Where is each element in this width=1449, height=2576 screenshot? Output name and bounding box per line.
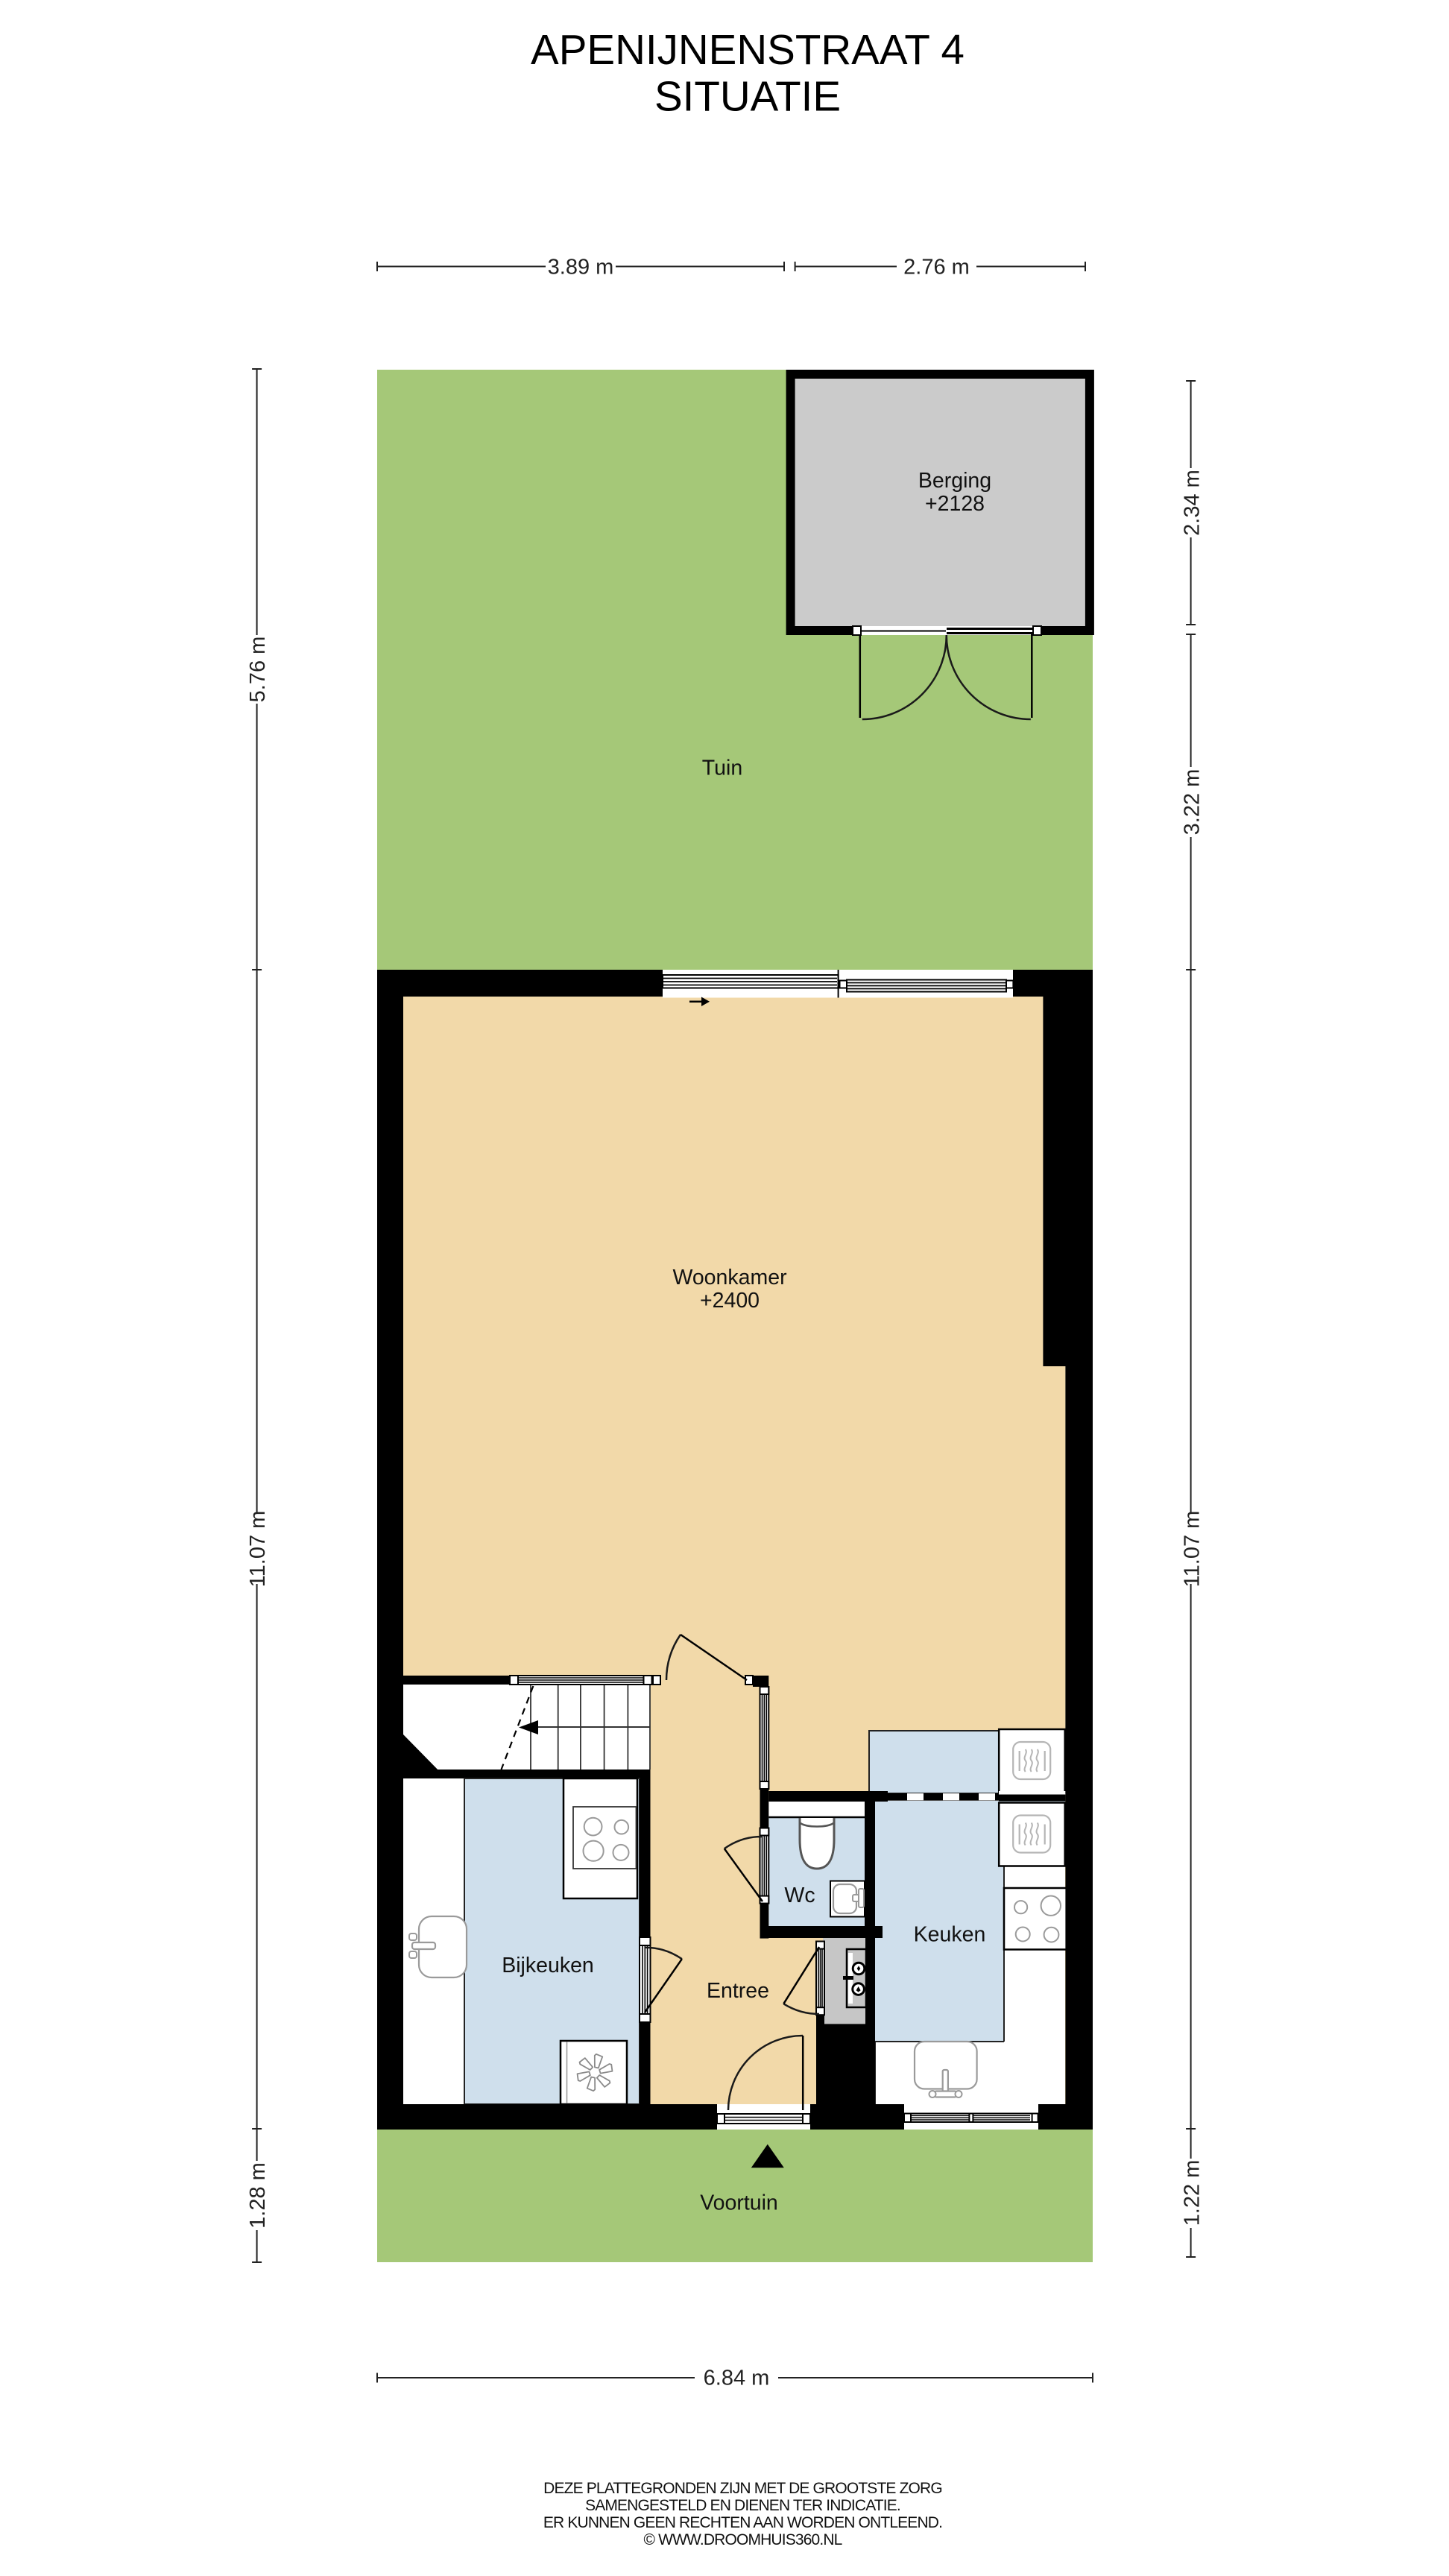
svg-text:+2128: +2128 xyxy=(925,492,985,516)
svg-text:Entree: Entree xyxy=(707,1979,769,2003)
svg-text:6.84 m: 6.84 m xyxy=(704,2367,770,2390)
svg-text:3.89 m: 3.89 m xyxy=(548,256,614,280)
svg-text:APENIJNENSTRAAT 4: APENIJNENSTRAAT 4 xyxy=(531,26,965,73)
svg-text:SAMENGESTELD EN DIENEN TER IND: SAMENGESTELD EN DIENEN TER INDICATIE. xyxy=(585,2497,900,2514)
svg-text:Keuken: Keuken xyxy=(914,1923,986,1947)
svg-text:Tuin: Tuin xyxy=(702,756,742,780)
svg-text:11.07 m: 11.07 m xyxy=(246,1511,270,1588)
svg-text:1.22 m: 1.22 m xyxy=(1181,2160,1205,2226)
svg-text:+2400: +2400 xyxy=(700,1289,760,1313)
svg-text:1.28 m: 1.28 m xyxy=(246,2162,270,2229)
svg-text:2.76 m: 2.76 m xyxy=(903,256,970,280)
svg-text:Wc: Wc xyxy=(784,1884,815,1907)
svg-text:2.34 m: 2.34 m xyxy=(1181,470,1205,536)
svg-text:ER KUNNEN GEEN RECHTEN AAN WOR: ER KUNNEN GEEN RECHTEN AAN WORDEN ONTLEE… xyxy=(543,2514,942,2531)
svg-text:Voortuin: Voortuin xyxy=(700,2191,778,2214)
svg-text:DEZE PLATTEGRONDEN ZIJN MET DE: DEZE PLATTEGRONDEN ZIJN MET DE GROOTSTE … xyxy=(543,2480,942,2497)
svg-text:Berging: Berging xyxy=(918,469,991,493)
svg-text:SITUATIE: SITUATIE xyxy=(654,72,841,119)
svg-text:Bijkeuken: Bijkeuken xyxy=(502,1954,594,1977)
svg-text:3.22 m: 3.22 m xyxy=(1181,769,1205,836)
svg-text:11.07 m: 11.07 m xyxy=(1181,1511,1205,1588)
svg-text:© WWW.DROOMHUIS360.NL: © WWW.DROOMHUIS360.NL xyxy=(644,2531,842,2548)
svg-text:Woonkamer: Woonkamer xyxy=(672,1266,787,1289)
svg-text:5.76 m: 5.76 m xyxy=(246,637,270,703)
